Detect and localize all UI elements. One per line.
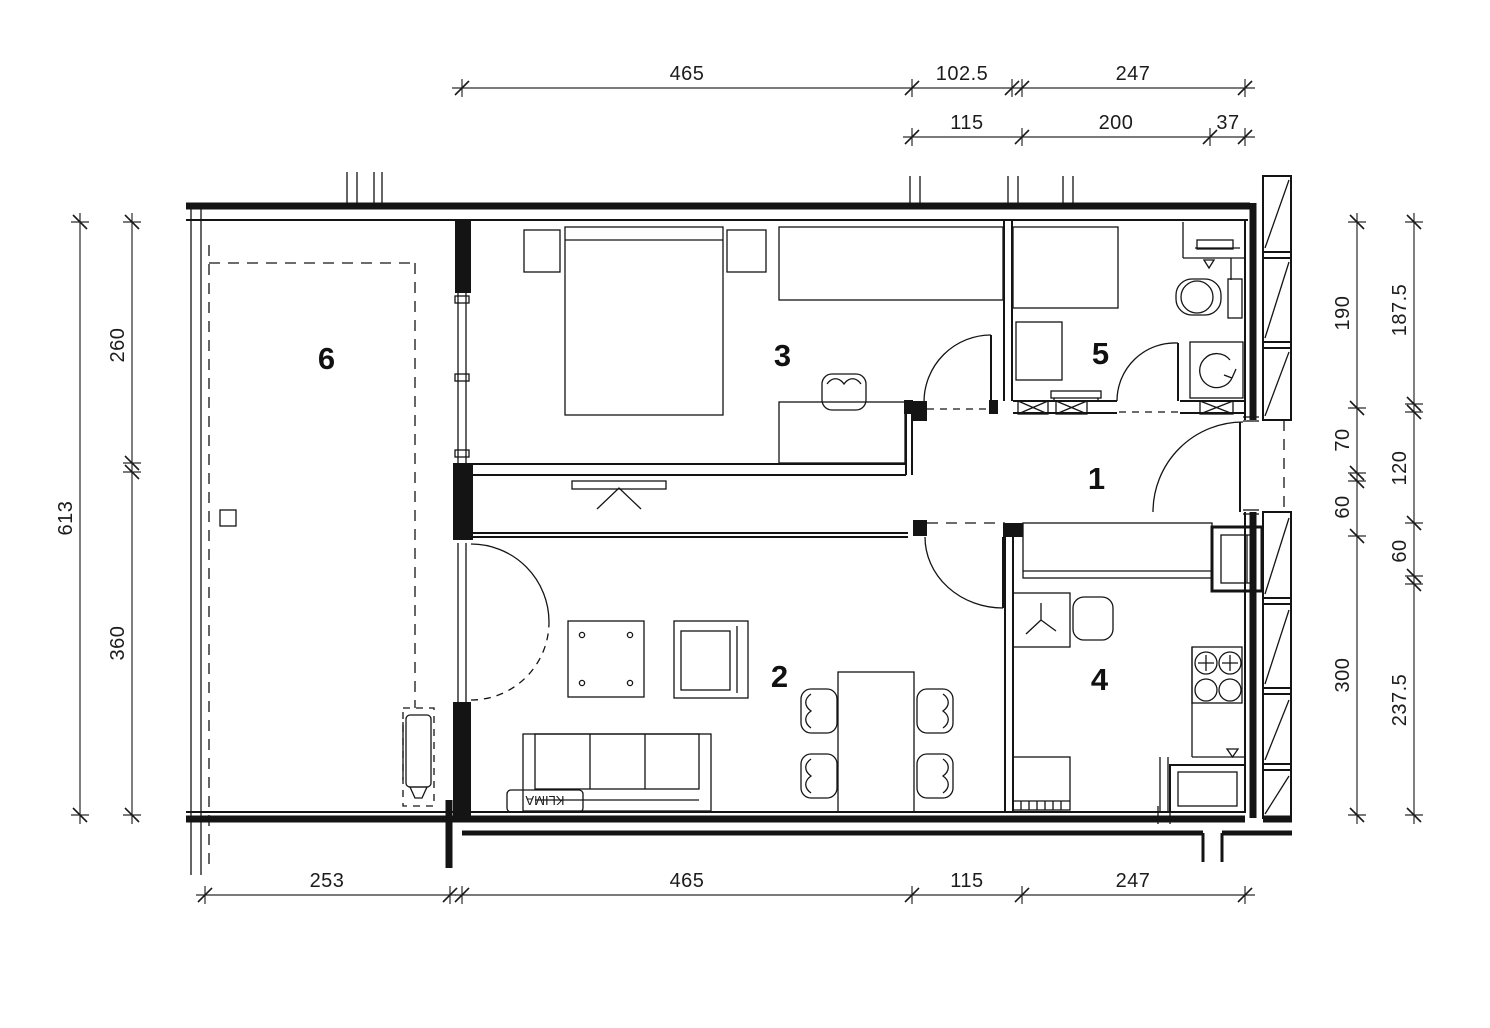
wardrobe: [779, 227, 1003, 300]
dining-set: [801, 672, 953, 812]
terrace-drain: [220, 510, 236, 526]
room-label-kitchen: 4: [1091, 662, 1109, 697]
dim-label: 253: [310, 870, 345, 892]
room-label-terrace: 6: [318, 341, 336, 376]
coffee-table: [568, 621, 644, 697]
entry-opening: [1243, 417, 1284, 514]
bedroom: [473, 227, 1003, 475]
desk: [779, 402, 905, 463]
dim-label: 260: [107, 328, 129, 363]
dim-label: 360: [107, 626, 129, 661]
ac-outdoor-unit: [403, 708, 434, 806]
kitchen-sink: [1013, 593, 1113, 647]
kitchen: [1003, 523, 1245, 812]
hatched-wall-strip: [1263, 176, 1291, 818]
armchair: [674, 621, 748, 698]
dim-label: 187.5: [1389, 284, 1411, 337]
dim-label: 60: [1389, 539, 1411, 562]
living-room: KLIMA: [507, 621, 953, 812]
dim-left-outer: 613: [55, 213, 89, 824]
wall-pier: [453, 463, 473, 540]
dining-chair: [801, 754, 837, 798]
balcony-door: [458, 543, 549, 702]
dim-label: 37: [1216, 112, 1239, 134]
dining-table: [838, 672, 914, 812]
dim-bottom: 253 465 115 247: [196, 870, 1255, 904]
door-swing-arc: [471, 544, 549, 622]
dim-label: 247: [1116, 63, 1151, 85]
room-label-hall: 1: [1088, 461, 1106, 496]
dim-label: 115: [950, 112, 983, 134]
terrace-dashed-outline: [209, 263, 415, 708]
door-swing-arc-dashed: [471, 622, 549, 700]
dim-top-row2: 115 200 37: [903, 112, 1255, 146]
washing-machine: [1190, 342, 1243, 398]
entry-door: [1153, 422, 1243, 512]
wall-pier: [453, 702, 471, 817]
bathroom-door: [1117, 343, 1178, 401]
corridor: [473, 481, 1003, 608]
kitchen-bottom-cabinets: [1013, 757, 1168, 812]
dining-chair: [917, 689, 953, 733]
toilet: [1176, 279, 1242, 318]
washbasin: [1183, 222, 1245, 280]
bed: [565, 227, 723, 415]
dim-label: 115: [950, 870, 983, 892]
nightstand-right: [727, 230, 766, 272]
balcony-partition: [453, 219, 549, 817]
hall-closet: [1023, 523, 1212, 578]
dim-label: 60: [1332, 495, 1354, 518]
dim-label: 102.5: [936, 63, 989, 85]
room-label-bathroom: 5: [1092, 336, 1110, 371]
floor-plan-drawing: KLIMA: [0, 0, 1490, 1028]
dim-label: 613: [55, 501, 77, 536]
dining-chair: [801, 689, 837, 733]
shower-tray: [1013, 227, 1118, 308]
kitchen-marker-triangle: [1227, 749, 1238, 757]
desk-chair: [822, 374, 866, 410]
dim-label: 237.5: [1389, 674, 1411, 727]
bath-cabinet: [1016, 322, 1062, 380]
dim-top-row1: 465 102.5 247: [452, 63, 1255, 97]
bathroom: [1004, 220, 1245, 414]
room-label-bedroom: 3: [774, 338, 792, 373]
dim-label: 200: [1099, 112, 1134, 134]
room-label-living: 2: [771, 659, 789, 694]
dim-label: 247: [1116, 870, 1151, 892]
bedroom-window: [455, 293, 469, 463]
dim-label: 190: [1332, 296, 1354, 331]
dim-right-inner: 190 70 60 300: [1332, 213, 1366, 824]
dim-right-outer: 187.5 120 60 237.5: [1389, 213, 1423, 824]
hall-wall-stub: [913, 520, 927, 536]
stove: [1192, 647, 1245, 757]
lower-parapet: [462, 833, 1292, 862]
coat-rack: [572, 481, 666, 509]
dim-label: 70: [1332, 428, 1354, 451]
hall: [913, 401, 1262, 591]
ac-indoor-unit: KLIMA: [507, 790, 583, 812]
ac-unit-label: KLIMA: [525, 793, 564, 808]
dim-label: 465: [670, 63, 705, 85]
fridge: [1170, 765, 1245, 812]
dim-label: 465: [670, 870, 705, 892]
top-wall-stubs: [347, 172, 1073, 203]
dim-left-inner: 260 360: [107, 213, 141, 824]
dim-label: 120: [1389, 451, 1411, 486]
nightstand-left: [524, 230, 560, 272]
living-room-door: [925, 537, 1003, 608]
kitchen-wall-stub: [1003, 523, 1023, 537]
terrace-left-edge: [191, 203, 209, 875]
wall-pier: [455, 219, 471, 293]
hall-wall-stub: [913, 401, 927, 421]
floor-plan-page: KLIMA: [0, 0, 1490, 1028]
dim-label: 300: [1332, 658, 1354, 693]
dining-chair: [917, 754, 953, 798]
